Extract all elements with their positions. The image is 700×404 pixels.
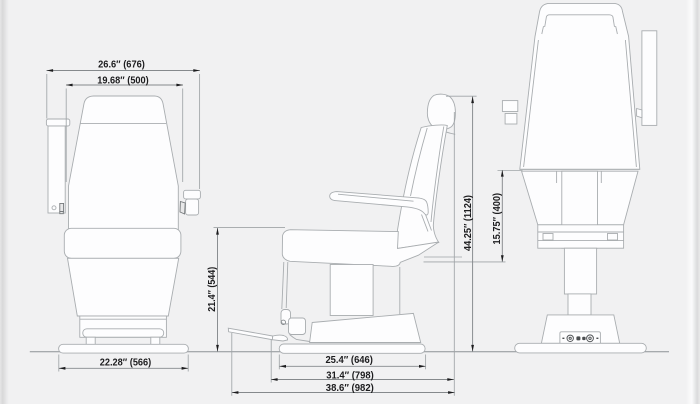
svg-text:44.25″ (1124): 44.25″ (1124) [463, 195, 474, 251]
svg-text:25.4″ (646): 25.4″ (646) [325, 355, 373, 366]
svg-text:19.68″ (500): 19.68″ (500) [97, 76, 149, 87]
svg-text:21.4″ (544): 21.4″ (544) [207, 267, 218, 312]
svg-text:26.6″ (676): 26.6″ (676) [98, 59, 145, 70]
svg-text:15.75″ (400): 15.75″ (400) [492, 193, 503, 245]
svg-text:22.28″ (566): 22.28″ (566) [100, 357, 152, 368]
svg-text:31.4″ (798): 31.4″ (798) [326, 371, 374, 382]
svg-text:38.6″ (982): 38.6″ (982) [326, 383, 374, 394]
